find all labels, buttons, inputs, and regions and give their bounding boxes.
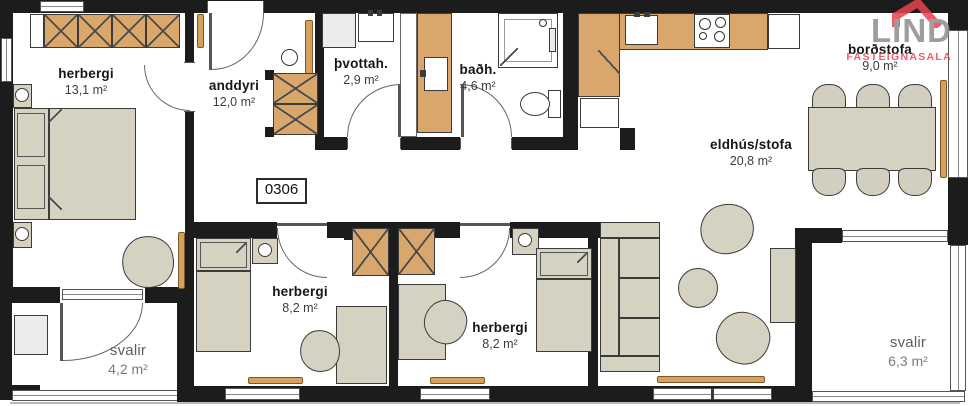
logo-brand-text: LIND bbox=[871, 12, 952, 50]
dishwasher-symbol bbox=[580, 98, 619, 128]
room-area: 13,1 m² bbox=[26, 83, 146, 98]
wall-segment bbox=[344, 222, 352, 240]
window bbox=[420, 388, 490, 400]
detail-line bbox=[618, 317, 660, 319]
wall-segment bbox=[389, 238, 398, 403]
detail-line bbox=[600, 355, 660, 357]
bath-door-opening bbox=[460, 138, 512, 149]
room-name: svalir bbox=[848, 334, 968, 352]
burner-icon bbox=[715, 17, 726, 28]
wall-segment bbox=[512, 137, 563, 150]
lamp-symbol bbox=[518, 233, 532, 247]
faucet-icon bbox=[368, 10, 373, 16]
pillow bbox=[17, 113, 45, 157]
balcony-railing bbox=[12, 390, 178, 401]
room-label-bath: baðh. 4,6 m² bbox=[434, 62, 522, 94]
wardrobe-symbol bbox=[398, 228, 435, 275]
pillow bbox=[17, 165, 45, 209]
faucet-icon bbox=[644, 12, 650, 17]
chair-symbol bbox=[898, 168, 932, 196]
kitchen-sink-symbol bbox=[625, 15, 658, 45]
wardrobe-symbol bbox=[44, 14, 78, 48]
balcony1-glass-door bbox=[62, 289, 143, 300]
toilet-symbol bbox=[520, 92, 550, 116]
bedroom2-door-leaf bbox=[460, 223, 510, 226]
faucet-icon bbox=[377, 10, 382, 16]
room-area: 6,3 m² bbox=[848, 353, 968, 370]
lamp-symbol bbox=[15, 227, 29, 241]
room-area: 4,2 m² bbox=[68, 361, 188, 378]
radiator bbox=[940, 80, 947, 178]
balcony-railing bbox=[812, 391, 965, 402]
floor-plan: 0306 bbox=[0, 0, 970, 406]
wardrobe-symbol bbox=[352, 228, 389, 276]
wardrobe-cell bbox=[30, 14, 44, 48]
shower-fixture bbox=[549, 28, 556, 52]
room-area: 8,2 m² bbox=[440, 337, 560, 352]
wall-segment bbox=[563, 13, 578, 150]
wall-segment bbox=[620, 128, 635, 150]
window bbox=[225, 388, 300, 400]
room-label-balcony1: svalir 4,2 m² bbox=[68, 342, 188, 378]
storage-box bbox=[14, 315, 48, 355]
vent-icon bbox=[281, 49, 298, 66]
radiator bbox=[657, 376, 765, 383]
burner-icon bbox=[714, 31, 725, 42]
wall-segment bbox=[0, 0, 968, 13]
lamp-symbol bbox=[258, 243, 272, 257]
plan-detail bbox=[10, 402, 960, 404]
room-name: baðh. bbox=[434, 62, 522, 78]
wardrobe-symbol bbox=[78, 14, 112, 48]
room-name: herbergi bbox=[440, 320, 560, 336]
lind-logo: LIND FASTEIGNASALA bbox=[836, 0, 968, 72]
balcony-railing bbox=[842, 230, 948, 242]
room-area: 2,9 m² bbox=[318, 73, 404, 88]
wall-segment bbox=[948, 178, 968, 245]
bedroom2-door-arc bbox=[460, 228, 510, 278]
room-label-master: herbergi 13,1 m² bbox=[26, 66, 146, 98]
detail-line bbox=[536, 278, 592, 280]
armchair-symbol bbox=[694, 197, 761, 261]
burner-icon bbox=[699, 18, 711, 30]
wall-segment bbox=[193, 222, 277, 238]
bedroom1-door-arc bbox=[277, 228, 327, 278]
room-area: 20,8 m² bbox=[690, 154, 812, 169]
wardrobe-symbol bbox=[146, 14, 180, 48]
shower-head-icon bbox=[539, 19, 547, 27]
detail-line bbox=[196, 270, 251, 272]
wall-segment bbox=[315, 137, 347, 150]
sink-symbol bbox=[358, 13, 394, 42]
radiator bbox=[197, 14, 204, 48]
room-label-bedroom2: herbergi 8,2 m² bbox=[440, 320, 560, 352]
room-label-balcony2: svalir 6,3 m² bbox=[848, 334, 968, 370]
detail-line bbox=[711, 388, 714, 400]
radiator bbox=[430, 377, 485, 384]
sofa-symbol bbox=[600, 222, 660, 372]
room-area: 8,2 m² bbox=[240, 301, 360, 316]
detail-line bbox=[577, 252, 588, 263]
faucet-icon bbox=[420, 70, 426, 77]
wall-segment bbox=[0, 287, 60, 303]
detail-line bbox=[48, 109, 62, 123]
detail-line bbox=[600, 237, 660, 239]
wall-segment bbox=[265, 127, 274, 137]
room-name: svalir bbox=[68, 342, 188, 360]
washer-symbol bbox=[322, 13, 356, 48]
wall-segment bbox=[795, 228, 842, 243]
room-name: eldhús/stofa bbox=[690, 137, 812, 153]
chair-symbol bbox=[812, 168, 846, 196]
radiator bbox=[178, 232, 185, 289]
room-name: anddyri bbox=[174, 78, 294, 94]
logo-tagline-text: FASTEIGNASALA bbox=[846, 51, 952, 63]
room-area: 4,6 m² bbox=[434, 79, 522, 94]
unit-number-box: 0306 bbox=[256, 178, 307, 204]
laundry-door-opening bbox=[347, 138, 401, 149]
room-name: þvottah. bbox=[318, 56, 404, 72]
radiator bbox=[305, 20, 313, 78]
window bbox=[40, 1, 84, 12]
detail-line bbox=[48, 196, 62, 210]
room-label-kitchen-living: eldhús/stofa 20,8 m² bbox=[690, 137, 812, 169]
room-label-bedroom1: herbergi 8,2 m² bbox=[240, 284, 360, 316]
entrance-door-opening bbox=[207, 1, 264, 13]
window bbox=[1, 38, 12, 82]
laundry-door-arc bbox=[347, 84, 401, 137]
room-name: herbergi bbox=[240, 284, 360, 300]
room-name: herbergi bbox=[26, 66, 146, 82]
faucet-icon bbox=[634, 12, 640, 17]
radiator bbox=[248, 377, 303, 384]
wardrobe-symbol bbox=[112, 14, 146, 48]
detail-line bbox=[618, 238, 620, 356]
wall-segment bbox=[401, 137, 460, 150]
detail-line bbox=[598, 50, 620, 74]
bedroom1-door-leaf bbox=[277, 223, 327, 226]
room-label-laundry: þvottah. 2,9 m² bbox=[318, 56, 404, 88]
armchair-symbol bbox=[116, 230, 179, 293]
entrance-door-arc bbox=[212, 13, 264, 70]
armchair-symbol bbox=[710, 306, 776, 370]
desk-symbol bbox=[336, 306, 387, 384]
room-label-anddyri: anddyri 12,0 m² bbox=[174, 78, 294, 110]
room-area: 12,0 m² bbox=[174, 95, 294, 110]
tv-cabinet-symbol bbox=[770, 248, 796, 323]
wall-segment bbox=[795, 228, 812, 390]
dining-table-symbol bbox=[808, 107, 936, 171]
burner-icon bbox=[699, 32, 707, 40]
detail-line bbox=[236, 242, 247, 253]
fridge-symbol bbox=[768, 14, 800, 49]
wall-segment bbox=[185, 13, 194, 62]
detail-line bbox=[618, 277, 660, 279]
chair-symbol bbox=[856, 168, 890, 196]
round-table-symbol bbox=[678, 268, 718, 308]
